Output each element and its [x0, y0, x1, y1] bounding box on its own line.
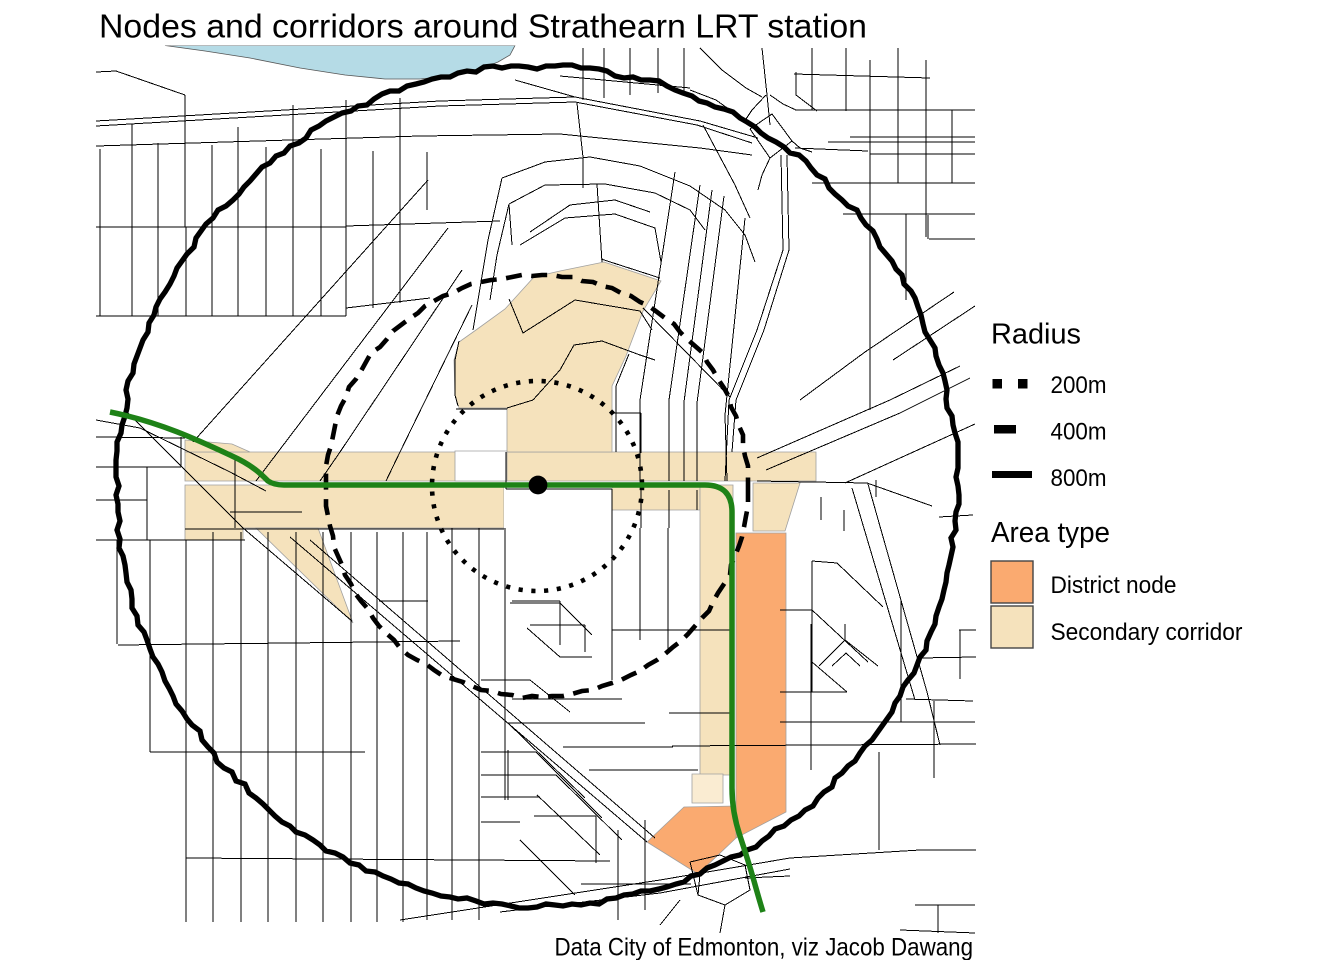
svg-text:District node: District node	[1051, 572, 1177, 599]
svg-text:Data City of Edmonton, viz Jac: Data City of Edmonton, viz Jacob Dawang	[555, 933, 974, 960]
svg-text:400m: 400m	[1051, 419, 1107, 446]
svg-text:Radius: Radius	[991, 319, 1081, 351]
svg-text:200m: 200m	[1051, 372, 1107, 399]
svg-text:Secondary corridor: Secondary corridor	[1051, 619, 1243, 646]
svg-text:Area type: Area type	[991, 517, 1110, 549]
svg-text:Nodes and corridors around Str: Nodes and corridors around Strathearn LR…	[99, 7, 867, 44]
svg-text:800m: 800m	[1051, 465, 1107, 492]
